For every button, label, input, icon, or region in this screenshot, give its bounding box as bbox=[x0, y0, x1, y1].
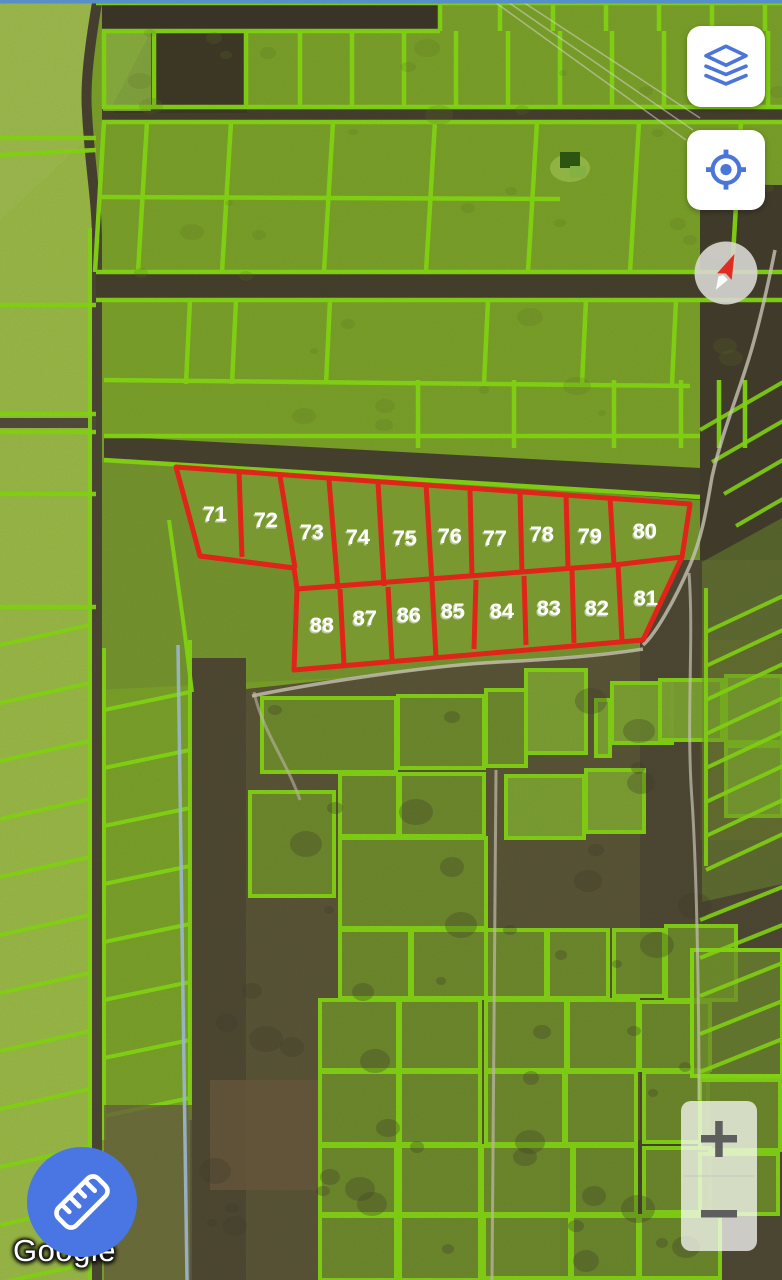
svg-text:74: 74 bbox=[346, 525, 370, 549]
svg-text:85: 85 bbox=[441, 599, 465, 623]
svg-text:83: 83 bbox=[537, 596, 561, 620]
svg-text:88: 88 bbox=[310, 613, 334, 637]
svg-text:76: 76 bbox=[438, 524, 462, 548]
svg-text:82: 82 bbox=[585, 596, 609, 620]
svg-text:86: 86 bbox=[397, 603, 421, 627]
svg-text:72: 72 bbox=[254, 508, 278, 532]
svg-text:79: 79 bbox=[578, 524, 602, 548]
svg-text:80: 80 bbox=[633, 519, 657, 543]
svg-text:78: 78 bbox=[530, 522, 554, 546]
svg-text:75: 75 bbox=[393, 526, 417, 550]
svg-text:84: 84 bbox=[490, 599, 514, 623]
svg-text:81: 81 bbox=[634, 586, 658, 610]
svg-text:73: 73 bbox=[300, 520, 324, 544]
svg-text:71: 71 bbox=[203, 502, 227, 526]
svg-text:87: 87 bbox=[353, 606, 377, 630]
svg-text:77: 77 bbox=[483, 526, 507, 550]
